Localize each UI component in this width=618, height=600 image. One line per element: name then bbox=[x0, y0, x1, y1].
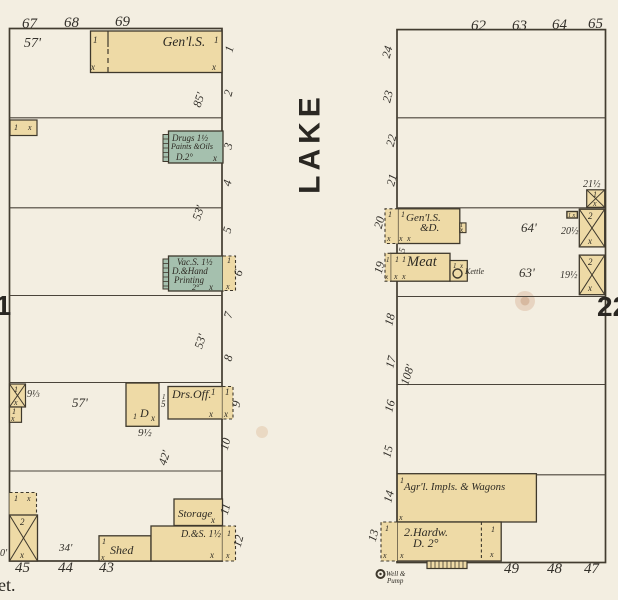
svg-text:x: x bbox=[150, 413, 155, 423]
svg-text:x: x bbox=[100, 553, 105, 562]
svg-text:x: x bbox=[210, 515, 215, 525]
svg-text:et.: et. bbox=[0, 575, 16, 595]
svg-text:x: x bbox=[398, 234, 403, 243]
svg-text:1: 1 bbox=[225, 387, 230, 397]
svg-text:x: x bbox=[223, 409, 228, 419]
svg-text:1: 1 bbox=[133, 412, 137, 421]
svg-text:x: x bbox=[19, 550, 24, 560]
svg-text:45: 45 bbox=[15, 560, 31, 576]
svg-text:1: 1 bbox=[93, 35, 98, 45]
svg-text:x: x bbox=[27, 123, 32, 132]
svg-text:1: 1 bbox=[385, 524, 389, 533]
svg-text:1: 1 bbox=[227, 256, 231, 265]
svg-text:1: 1 bbox=[102, 537, 106, 546]
svg-text:1: 1 bbox=[593, 190, 597, 199]
svg-text:x: x bbox=[399, 551, 404, 560]
svg-text:Printing: Printing bbox=[173, 275, 205, 285]
svg-text:2: 2 bbox=[588, 211, 593, 221]
svg-text:Meat: Meat bbox=[406, 254, 438, 270]
svg-text:x: x bbox=[587, 236, 592, 246]
svg-text:1: 1 bbox=[401, 210, 405, 219]
svg-text:0': 0' bbox=[0, 548, 8, 559]
svg-text:49: 49 bbox=[504, 561, 520, 577]
svg-text:x: x bbox=[26, 494, 31, 503]
svg-text:D.&S. 1½: D.&S. 1½ bbox=[180, 529, 222, 540]
svg-text:19½: 19½ bbox=[560, 270, 578, 281]
svg-text:x: x bbox=[489, 550, 494, 559]
svg-text:9½: 9½ bbox=[138, 427, 152, 439]
svg-text:D: D bbox=[139, 406, 149, 420]
svg-text:x: x bbox=[212, 153, 217, 163]
svg-text:34': 34' bbox=[58, 542, 73, 554]
svg-text:20½: 20½ bbox=[561, 226, 579, 237]
svg-text:1: 1 bbox=[453, 262, 457, 270]
svg-text:x: x bbox=[90, 62, 95, 72]
svg-text:Kettle: Kettle bbox=[464, 267, 485, 276]
svg-text:x: x bbox=[401, 272, 406, 281]
svg-text:1: 1 bbox=[395, 255, 399, 264]
svg-text:44: 44 bbox=[58, 560, 74, 576]
svg-text:LAKE: LAKE bbox=[294, 92, 327, 194]
svg-text:1: 1 bbox=[402, 255, 406, 264]
svg-text:62: 62 bbox=[471, 18, 487, 34]
svg-text:Gen'l.S.: Gen'l.S. bbox=[163, 34, 206, 49]
svg-text:x: x bbox=[382, 551, 387, 560]
svg-text:Pump: Pump bbox=[386, 577, 404, 585]
svg-text:69: 69 bbox=[115, 14, 131, 30]
svg-text:64': 64' bbox=[521, 220, 537, 235]
svg-text:x: x bbox=[208, 409, 213, 419]
svg-text:x: x bbox=[592, 199, 597, 208]
svg-text:x: x bbox=[398, 513, 403, 522]
svg-text:&D.: &D. bbox=[420, 222, 439, 234]
svg-text:Paints &Oils: Paints &Oils bbox=[170, 142, 213, 151]
svg-text:57': 57' bbox=[72, 395, 88, 410]
svg-text:47: 47 bbox=[584, 561, 601, 577]
svg-text:1: 1 bbox=[400, 476, 404, 485]
svg-text:x: x bbox=[208, 282, 213, 292]
svg-text:x: x bbox=[406, 234, 411, 243]
svg-text:67: 67 bbox=[22, 16, 39, 32]
svg-text:x: x bbox=[13, 398, 18, 407]
svg-text:22: 22 bbox=[597, 291, 618, 322]
svg-text:x: x bbox=[211, 62, 216, 72]
svg-text:1: 1 bbox=[14, 494, 18, 503]
svg-text:1: 1 bbox=[388, 210, 392, 219]
svg-text:1: 1 bbox=[491, 525, 495, 534]
svg-text:2: 2 bbox=[20, 517, 25, 527]
svg-text:1: 1 bbox=[211, 387, 216, 397]
svg-text:x: x bbox=[209, 550, 214, 560]
svg-text:63: 63 bbox=[512, 18, 527, 34]
svg-text:21½: 21½ bbox=[583, 179, 601, 190]
svg-text:57': 57' bbox=[24, 36, 42, 51]
svg-text:1 x: 1 x bbox=[568, 213, 576, 219]
svg-text:43: 43 bbox=[99, 560, 114, 576]
svg-text:1: 1 bbox=[14, 123, 18, 132]
svg-text:68: 68 bbox=[64, 15, 80, 31]
svg-text:Drs.Off.: Drs.Off. bbox=[171, 387, 211, 401]
svg-text:63': 63' bbox=[519, 265, 535, 280]
svg-text:2°: 2° bbox=[192, 283, 200, 292]
svg-text:D.2°: D.2° bbox=[175, 152, 193, 162]
svg-text:x: x bbox=[10, 414, 15, 423]
svg-text:65: 65 bbox=[588, 16, 604, 32]
svg-text:x: x bbox=[225, 282, 230, 291]
svg-text:x: x bbox=[386, 234, 391, 243]
svg-text:48: 48 bbox=[547, 561, 563, 577]
svg-text:9⅓: 9⅓ bbox=[27, 389, 40, 400]
svg-text:Storage: Storage bbox=[178, 508, 212, 520]
svg-text:21: 21 bbox=[0, 290, 11, 321]
svg-text:1: 1 bbox=[14, 385, 18, 394]
svg-text:2: 2 bbox=[588, 257, 593, 267]
svg-text:Shed: Shed bbox=[110, 543, 134, 557]
svg-text:x: x bbox=[225, 551, 230, 560]
svg-text:1: 1 bbox=[214, 35, 219, 45]
svg-text:x: x bbox=[587, 283, 592, 293]
svg-text:Agr'l. Impls. & Wagons: Agr'l. Impls. & Wagons bbox=[403, 481, 505, 493]
svg-text:D. 2°: D. 2° bbox=[412, 536, 439, 550]
svg-text:1: 1 bbox=[386, 256, 390, 264]
svg-text:64: 64 bbox=[552, 17, 568, 33]
svg-text:5: 5 bbox=[161, 399, 166, 409]
svg-text:x: x bbox=[393, 272, 398, 281]
svg-text:1: 1 bbox=[227, 529, 231, 538]
